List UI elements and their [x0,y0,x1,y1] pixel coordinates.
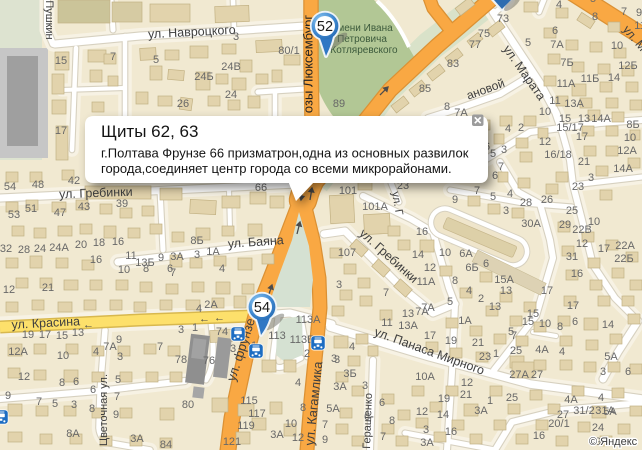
svg-text:8Б: 8Б [626,119,639,131]
svg-text:3: 3 [503,205,509,217]
svg-text:3: 3 [362,380,368,392]
svg-text:15: 15 [56,330,68,342]
svg-text:16: 16 [90,254,102,266]
svg-text:5: 5 [590,0,596,5]
svg-text:14А: 14А [613,163,633,175]
svg-text:© Яндекс: © Яндекс [589,436,638,448]
svg-text:3: 3 [230,343,236,355]
svg-text:47: 47 [54,207,66,219]
svg-text:←: ← [214,312,225,324]
svg-text:8: 8 [59,377,65,389]
svg-text:7А: 7А [421,302,435,314]
svg-text:7: 7 [157,341,163,353]
svg-text:21: 21 [472,337,484,349]
svg-text:Цветочная ул.: Цветочная ул. [98,374,110,446]
svg-text:9: 9 [452,194,458,206]
svg-text:24: 24 [592,422,604,434]
svg-text:13: 13 [489,301,501,313]
svg-text:15: 15 [55,55,67,67]
svg-text:17: 17 [55,125,67,137]
svg-text:3: 3 [233,31,239,43]
svg-text:27: 27 [531,369,543,381]
svg-text:9: 9 [636,7,642,19]
svg-text:1: 1 [487,395,493,407]
svg-text:13А: 13А [398,320,418,332]
svg-text:24Б: 24Б [194,71,213,83]
svg-text:13: 13 [402,308,414,320]
svg-text:121: 121 [223,436,241,448]
svg-text:115: 115 [240,395,258,407]
svg-text:16: 16 [445,426,457,438]
svg-text:22Б: 22Б [614,253,633,265]
svg-text:←: ← [83,319,94,331]
svg-text:8: 8 [89,403,95,415]
svg-text:9: 9 [322,434,328,446]
svg-text:107: 107 [338,247,356,259]
svg-text:4: 4 [295,377,301,389]
svg-text:14: 14 [602,319,614,331]
svg-text:3А: 3А [170,251,184,263]
svg-text:43: 43 [78,201,90,213]
svg-text:12А: 12А [617,145,637,157]
svg-text:4: 4 [505,123,511,135]
svg-text:53: 53 [8,209,20,221]
svg-text:32: 32 [0,243,12,255]
svg-text:3: 3 [423,424,429,436]
svg-text:27А: 27А [509,369,529,381]
svg-text:19: 19 [22,329,34,341]
svg-text:4: 4 [219,263,225,275]
svg-text:7: 7 [114,391,120,403]
svg-text:39: 39 [116,198,128,210]
svg-text:10: 10 [611,40,623,52]
svg-text:21: 21 [42,282,54,294]
svg-text:1А: 1А [206,246,220,258]
svg-text:8: 8 [444,101,450,113]
svg-text:3: 3 [600,366,606,378]
svg-text:22А: 22А [615,240,635,252]
svg-text:101: 101 [339,185,357,197]
svg-text:3: 3 [194,249,200,261]
svg-text:11: 11 [381,317,392,329]
svg-text:25: 25 [510,345,522,357]
svg-text:16: 16 [571,268,583,280]
svg-text:48: 48 [32,179,44,191]
svg-text:7: 7 [322,419,328,431]
svg-text:83: 83 [447,58,459,70]
svg-text:10: 10 [57,350,69,362]
svg-text:8Б: 8Б [190,235,203,247]
svg-text:Щиты 62, 63: Щиты 62, 63 [101,122,198,141]
svg-text:23: 23 [479,351,491,363]
svg-text:10: 10 [539,318,551,330]
svg-text:6: 6 [572,316,578,328]
svg-text:12: 12 [424,262,436,274]
svg-text:8: 8 [143,263,149,275]
svg-text:10: 10 [439,247,451,259]
svg-text:5: 5 [525,37,531,49]
svg-text:24В: 24В [221,61,241,73]
svg-text:73: 73 [497,13,509,25]
svg-text:4А: 4А [535,344,549,356]
svg-text:7: 7 [621,6,627,18]
svg-text:12: 12 [292,432,304,444]
svg-text:77: 77 [469,39,481,51]
svg-text:6: 6 [625,366,631,378]
svg-text:6А: 6А [459,248,473,260]
svg-text:3А: 3А [130,433,144,445]
svg-text:Пушкин: Пушкин [43,0,55,39]
svg-text:17: 17 [541,285,553,297]
svg-text:11А: 11А [417,276,436,288]
svg-text:5: 5 [508,326,514,338]
svg-text:21: 21 [578,156,590,168]
svg-text:1А: 1А [458,315,472,327]
svg-text:3: 3 [336,279,342,291]
svg-text:2: 2 [304,348,310,360]
svg-text:11: 11 [125,250,136,262]
svg-text:18: 18 [93,237,105,249]
svg-text:2: 2 [478,293,484,305]
svg-text:5: 5 [115,374,121,386]
svg-text:6: 6 [492,170,498,182]
svg-text:24А: 24А [49,242,69,254]
svg-text:4: 4 [556,0,562,11]
svg-text:5А: 5А [326,403,340,415]
svg-text:12: 12 [539,136,551,148]
svg-text:17: 17 [424,330,436,342]
svg-text:21: 21 [460,389,472,401]
svg-text:78: 78 [175,354,187,366]
svg-text:4: 4 [598,392,604,404]
svg-text:80/1: 80/1 [278,45,299,57]
svg-text:3: 3 [501,144,507,156]
svg-text:5: 5 [52,398,58,410]
svg-text:80: 80 [182,399,194,411]
svg-text:10: 10 [285,418,297,430]
svg-text:6Б: 6Б [465,262,478,274]
svg-text:3: 3 [588,172,594,184]
svg-text:101А: 101А [362,201,388,213]
svg-text:8: 8 [452,275,458,287]
svg-text:6: 6 [364,411,370,423]
svg-text:2: 2 [518,122,524,134]
svg-text:85: 85 [419,83,431,95]
svg-text:12А: 12А [8,346,28,358]
svg-text:7: 7 [380,431,386,443]
svg-text:8: 8 [389,415,395,427]
svg-text:4: 4 [466,285,472,297]
svg-text:6: 6 [167,263,173,275]
svg-text:12Б: 12Б [618,60,637,72]
svg-text:66: 66 [255,182,267,194]
svg-text:11Б: 11Б [581,73,600,85]
svg-text:25: 25 [566,205,578,217]
svg-text:17: 17 [598,243,610,255]
svg-text:12: 12 [416,406,428,418]
svg-text:12: 12 [18,371,30,383]
svg-text:16: 16 [112,236,124,248]
svg-text:9: 9 [116,334,122,346]
svg-text:54: 54 [4,181,16,193]
svg-text:29: 29 [559,219,571,231]
svg-text:3Б: 3Б [343,368,356,380]
svg-text:17: 17 [39,329,51,341]
svg-text:6: 6 [90,384,96,396]
svg-text:9: 9 [158,252,164,264]
svg-text:6: 6 [483,258,489,270]
svg-text:31: 31 [566,251,578,263]
svg-text:42: 42 [68,175,80,187]
svg-text:76: 76 [203,355,215,367]
svg-text:13А: 13А [564,98,584,110]
svg-text:117: 117 [248,408,266,420]
svg-text:8: 8 [300,402,306,414]
svg-text:1: 1 [493,348,499,360]
svg-text:51: 51 [25,203,37,215]
svg-text:26: 26 [177,98,189,110]
svg-text:4: 4 [93,346,99,358]
svg-text:города,соединяет центр города: города,соединяет центр города со всеми м… [101,161,452,176]
svg-text:7: 7 [383,287,389,299]
svg-text:6: 6 [73,376,79,388]
svg-text:1: 1 [192,322,198,334]
svg-text:14: 14 [412,249,424,261]
svg-text:22В: 22В [572,224,592,236]
svg-text:15: 15 [559,113,571,125]
svg-text:4: 4 [196,303,202,315]
svg-text:7: 7 [474,185,480,197]
svg-text:5: 5 [153,54,159,66]
svg-text:3: 3 [334,354,340,366]
svg-text:30А: 30А [521,218,541,230]
svg-text:13: 13 [500,285,512,297]
svg-text:4: 4 [507,188,513,200]
svg-text:5А: 5А [604,351,618,363]
svg-text:17: 17 [567,300,579,312]
svg-text:31А: 31А [595,405,615,417]
svg-text:24: 24 [34,243,46,255]
svg-text:119: 119 [237,420,255,432]
svg-text:7Б: 7Б [560,57,573,69]
svg-text:г.Полтава Фрунзе 66 призматрон: г.Полтава Фрунзе 66 призматрон,одна из о… [101,146,469,161]
svg-text:3: 3 [178,324,184,336]
svg-text:19: 19 [445,335,457,347]
svg-text:11: 11 [634,20,642,32]
svg-text:9: 9 [5,390,11,402]
svg-text:9: 9 [113,409,119,421]
svg-text:8: 8 [557,321,563,333]
svg-text:12: 12 [3,284,15,296]
svg-text:28: 28 [520,197,532,209]
svg-text:7А: 7А [550,39,564,51]
svg-text:10: 10 [118,264,130,276]
svg-text:7: 7 [498,161,504,173]
svg-text:7: 7 [36,396,42,408]
svg-text:3: 3 [71,399,77,411]
svg-text:3А: 3А [420,437,434,449]
svg-text:13: 13 [72,327,84,339]
svg-text:12: 12 [461,377,473,389]
svg-text:5: 5 [447,296,453,308]
svg-text:26: 26 [541,194,553,206]
svg-text:14: 14 [437,409,449,421]
svg-text:13: 13 [578,113,590,125]
svg-text:54: 54 [254,300,270,316]
svg-text:3А: 3А [270,429,284,441]
svg-text:14: 14 [608,72,620,84]
svg-text:2А: 2А [204,299,218,311]
svg-text:11А: 11А [557,78,576,90]
svg-text:20: 20 [75,239,87,251]
svg-text:113: 113 [268,330,286,342]
svg-text:7: 7 [110,51,116,63]
svg-text:3А: 3А [333,381,347,393]
svg-text:12: 12 [576,238,588,250]
svg-text:28: 28 [18,244,30,256]
svg-text:6: 6 [379,397,385,409]
svg-text:19: 19 [438,393,450,405]
svg-text:89: 89 [333,98,345,110]
svg-text:52: 52 [317,19,333,35]
svg-text:3: 3 [117,351,123,363]
svg-text:25: 25 [506,392,518,404]
svg-text:4: 4 [349,341,355,353]
svg-text:14А: 14А [591,113,611,125]
svg-text:Котляревского: Котляревского [330,45,398,56]
svg-text:74: 74 [216,326,228,338]
svg-text:84: 84 [160,439,172,450]
svg-text:8А: 8А [66,428,80,440]
svg-text:16: 16 [416,226,428,238]
svg-text:6: 6 [552,25,558,37]
svg-text:24: 24 [225,89,237,101]
svg-text:16: 16 [533,430,545,442]
svg-text:113А: 113А [296,314,322,326]
svg-text:5: 5 [490,191,496,203]
svg-text:23: 23 [572,181,584,193]
svg-text:7А: 7А [103,341,117,353]
svg-text:20/1: 20/1 [548,418,569,430]
svg-text:15: 15 [527,308,539,320]
svg-text:16/18: 16/18 [544,149,572,161]
svg-text:4: 4 [559,346,565,358]
svg-text:31/2: 31/2 [573,405,594,417]
svg-text:10А: 10А [415,371,435,383]
svg-text:10: 10 [539,106,551,118]
svg-text:10: 10 [624,132,636,144]
svg-text:8: 8 [592,11,598,23]
svg-text:мени Ивана: мени Ивана [337,23,393,34]
svg-text:5: 5 [490,148,496,160]
